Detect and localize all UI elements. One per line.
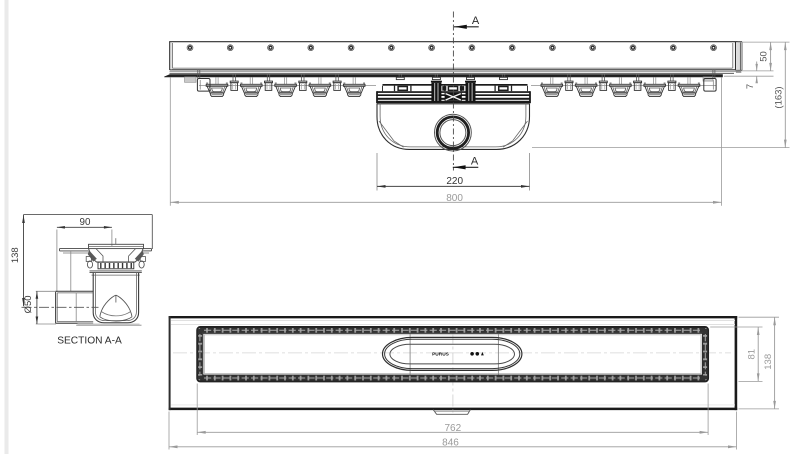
svg-text:846: 846 (442, 437, 459, 448)
svg-text:138: 138 (10, 247, 21, 263)
svg-text:90: 90 (80, 217, 91, 228)
svg-text:A: A (471, 155, 479, 167)
svg-text:138: 138 (763, 354, 774, 370)
svg-text:7: 7 (745, 84, 756, 89)
svg-text:50: 50 (759, 51, 770, 62)
svg-text:PURUS: PURUS (432, 352, 450, 358)
svg-text:(163): (163) (774, 86, 785, 108)
svg-text:Ø50: Ø50 (23, 295, 34, 313)
svg-text:762: 762 (444, 423, 461, 434)
svg-text:800: 800 (446, 193, 463, 204)
svg-text:220: 220 (446, 176, 463, 187)
svg-text:81: 81 (747, 349, 758, 360)
svg-text:A: A (472, 15, 480, 27)
svg-text:SECTION A-A: SECTION A-A (57, 335, 122, 346)
